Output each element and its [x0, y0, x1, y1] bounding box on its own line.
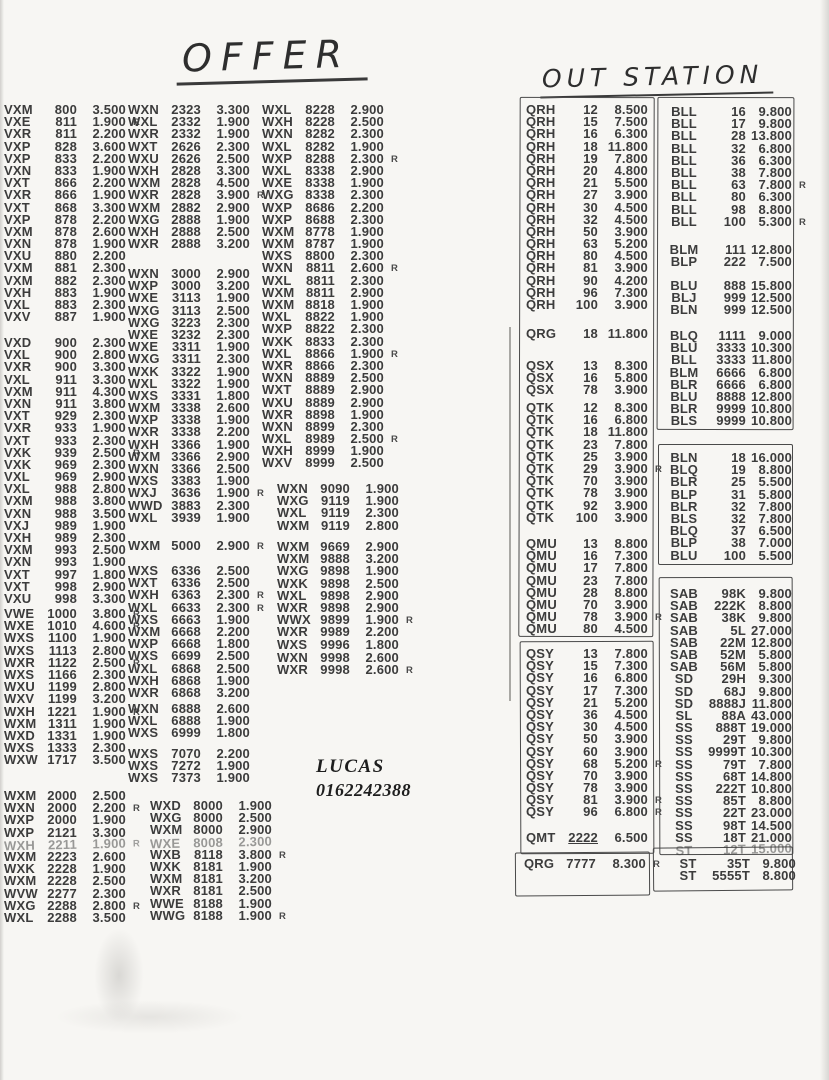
price-group: WXM50002.900R	[128, 540, 250, 552]
price-group: BLN1816.000BLQ198.800BLR255.500BLP315.80…	[664, 452, 792, 562]
cell-value: 3.200	[204, 687, 250, 700]
cell-value: 6.800	[598, 806, 648, 819]
outstation-row: BLP2227.500	[664, 256, 792, 268]
cell-number: 100	[704, 550, 746, 563]
cell-number: 9999	[704, 415, 746, 428]
cell-value: 11.800	[598, 328, 648, 341]
cell-number: 2288	[45, 912, 77, 925]
outstation-row: QRH1003.900	[526, 299, 648, 311]
cell-value: 10.800	[746, 415, 792, 428]
cell-value: 3.500	[80, 754, 126, 767]
price-group: BLL169.800BLL179.800BLL2813.800BLL326.80…	[664, 106, 792, 228]
cell-value: 2.800	[353, 520, 399, 533]
cell-number: 9998	[318, 664, 350, 677]
price-group: VXM8003.500VXE8111.900RVXR8112.200VXP828…	[4, 104, 126, 323]
cell-number: 3939	[169, 512, 201, 525]
price-group: WXL82282.900WXH82282.500WXN82822.300WXL8…	[262, 104, 384, 470]
cell-code: WXL	[4, 912, 42, 925]
offer-row: WXS69991.800	[128, 727, 250, 739]
cell-code: QRG	[524, 858, 560, 871]
outstation-row: QTK1003.900	[526, 512, 648, 524]
price-group: QRH128.500QRH157.500QRH166.300QRH1811.80…	[526, 104, 648, 311]
cell-code: VXU	[4, 593, 42, 606]
cell-code: WXM	[128, 540, 166, 553]
cell-code: WXW	[4, 754, 42, 767]
cell-value: 2.600	[353, 664, 399, 677]
cell-number: 100	[562, 512, 598, 525]
outstation-row: QSX783.900	[526, 384, 648, 396]
outstation-row: ST5555T8.800	[668, 870, 796, 882]
offer-row: WXS99961.800	[277, 639, 399, 651]
cell-value: 8.300	[596, 858, 646, 871]
cell-number: 100	[704, 216, 746, 229]
cell-code: BLP	[664, 256, 704, 269]
price-group: QTK128.300QTK166.800QTK1811.800QTK237.80…	[526, 402, 648, 524]
cell-code: QMT	[526, 832, 562, 845]
cell-value: 12.500	[746, 304, 792, 317]
cell-value: 1.900	[204, 772, 250, 785]
cell-value: 1.800	[204, 727, 250, 740]
cell-code: WXR	[128, 687, 166, 700]
price-group: WXN23233.300WXL23321.900WXR23321.900WXT2…	[128, 104, 250, 250]
cell-value: 7.500	[746, 256, 792, 269]
price-group: QMT22226.500	[526, 832, 648, 844]
cell-value: 2.500	[338, 457, 384, 470]
price-group: BLM11112.800BLP2227.500	[664, 244, 792, 268]
scanned-price-sheet: OFFER OUT STATION VXM8003.500VXE8111.900…	[0, 0, 829, 1080]
r-mark: R	[391, 349, 398, 362]
price-group: WXS63362.500WXT63362.500WXH63632.300RWXL…	[128, 565, 250, 699]
offer-row: WWG81881.900R	[150, 910, 272, 922]
cell-value: 2.900	[204, 540, 250, 553]
cell-value: 3.900	[598, 299, 648, 312]
r-mark: R	[257, 541, 264, 554]
cell-number: 80	[562, 623, 598, 636]
offer-row: WXL22883.500	[4, 912, 126, 924]
r-mark: R	[653, 859, 660, 872]
outstation-row: BLL1005.300R	[664, 216, 792, 228]
cell-number: 6999	[169, 727, 201, 740]
r-mark: R	[279, 850, 286, 863]
r-mark: R	[391, 434, 398, 447]
r-mark: R	[133, 901, 140, 914]
price-group: WXM20002.500WXN20002.200RWXP20001.900WXP…	[4, 790, 126, 924]
r-mark: R	[133, 803, 140, 816]
offer-row: WXL39391.900	[128, 512, 250, 524]
cell-number: 18	[562, 328, 598, 341]
cell-value: 3.900	[598, 384, 648, 397]
cell-number: 2888	[169, 238, 201, 251]
offer-row: WXS73731.900	[128, 772, 250, 784]
outstation-title: OUT STATION	[540, 60, 774, 99]
cell-code: BLN	[664, 304, 704, 317]
contact-note: LUCAS 0162242388	[316, 756, 411, 801]
cell-number: 78	[562, 384, 598, 397]
cell-code: WXL	[128, 512, 166, 525]
outstation-row: QSY966.800R	[526, 806, 648, 818]
outstation-row: BLN99912.500	[664, 304, 792, 316]
offer-row: VXU9983.300	[4, 593, 126, 605]
price-group: WXN99982.600WXR99982.600R	[277, 652, 399, 676]
outstation-row: QRG77778.300R	[524, 858, 646, 870]
cell-code: BLL	[664, 216, 704, 229]
cell-code: BLS	[664, 415, 704, 428]
cell-code: WXM	[277, 520, 315, 533]
offer-row: WXV89992.500	[262, 457, 384, 469]
price-group: QMU138.800QMU167.300QMU177.800QMU237.800…	[526, 538, 648, 636]
price-group: VXD9002.300VXL9002.800VXR9003.300VXL9113…	[4, 337, 126, 605]
contact-phone: 0162242388	[316, 780, 411, 801]
r-mark: R	[391, 263, 398, 276]
offer-row: WXM91192.800	[277, 520, 399, 532]
price-group: QSX138.300QSX165.800QSX783.900	[526, 360, 648, 397]
cell-number: 998	[45, 593, 77, 606]
r-mark: R	[257, 488, 264, 501]
cell-value: 15.000	[746, 842, 792, 856]
cell-number: 999	[704, 304, 746, 317]
r-mark: R	[799, 180, 806, 193]
cell-code: BLU	[664, 550, 704, 563]
cell-number: 9119	[318, 520, 350, 533]
r-mark: R	[279, 911, 286, 924]
price-group: WXM96692.900WXM98883.200WXG98981.900WXK9…	[277, 541, 399, 651]
outstation-row: QMU804.500	[526, 623, 648, 635]
r-mark: R	[655, 795, 662, 808]
cell-value: 8.800	[750, 870, 796, 883]
price-group: SAB98K9.800SAB222K8.800SAB38K9.800SAB5L2…	[664, 588, 792, 856]
cell-code: ST	[668, 870, 708, 883]
r-mark: R	[133, 838, 140, 851]
price-group: WXD80001.900WXG80002.500WXM80002.900WXE8…	[150, 800, 272, 922]
scan-smudge	[55, 1000, 245, 1034]
offer-row: VXV8871.900	[4, 311, 126, 323]
price-group: QSY137.800QSY157.300QSY166.800QSY177.300…	[526, 648, 648, 819]
cell-number: 7373	[169, 772, 201, 785]
price-group: WXN68882.600WXL68881.900WXS69991.800	[128, 703, 250, 740]
r-mark: R	[257, 590, 264, 603]
offer-row: WXR68683.200	[128, 687, 250, 699]
cell-number: 2222	[562, 832, 598, 845]
offer-row: WXW17173.500	[4, 754, 126, 766]
cell-value: 5.300	[746, 216, 792, 229]
cell-code: QRG	[526, 328, 562, 341]
contact-name: LUCAS	[316, 756, 411, 778]
cell-code: WXV	[262, 457, 300, 470]
cell-value: 3.900	[598, 512, 648, 525]
price-group: WXN90901.900WXG91191.900WXL91192.300WXM9…	[277, 483, 399, 532]
r-mark: R	[257, 603, 264, 616]
cell-number: 222	[704, 256, 746, 269]
cell-number: 887	[45, 311, 77, 324]
cell-number: 5000	[169, 540, 201, 553]
r-mark: R	[655, 464, 662, 477]
cell-value: 3.300	[80, 593, 126, 606]
scan-edge-right	[820, 0, 829, 1080]
cell-code: WXS	[128, 772, 166, 785]
cell-code: QMU	[526, 623, 562, 636]
offer-row: WXM50002.900R	[128, 540, 250, 552]
cell-value: 1.900	[204, 512, 250, 525]
price-group: VWE10003.800RWXE10104.600RWXS11001.900WX…	[4, 608, 126, 766]
outstation-row: QRG1811.800	[526, 328, 648, 340]
r-mark: R	[406, 615, 413, 628]
price-group: WXN30002.900WXP30003.200WXE31131.900WXG3…	[128, 268, 250, 524]
r-mark: R	[655, 759, 662, 772]
cell-number: 7777	[560, 858, 596, 871]
price-group: ST35T9.800ST5555T8.800	[668, 858, 796, 882]
cell-number: 8999	[303, 457, 335, 470]
cell-code: QTK	[526, 512, 562, 525]
r-mark: R	[391, 154, 398, 167]
r-mark: R	[799, 217, 806, 230]
cell-code: QSY	[526, 806, 562, 819]
cell-number: 1717	[45, 754, 77, 767]
cell-value: 3.500	[80, 912, 126, 925]
cell-code: WXS	[128, 727, 166, 740]
cell-value: 4.500	[598, 623, 648, 636]
outstation-row: BLU1005.500	[664, 550, 792, 562]
cell-code: VXV	[4, 311, 42, 324]
cell-value: 3.200	[204, 238, 250, 251]
cell-value: 6.500	[598, 832, 648, 845]
cell-code: QRH	[526, 299, 562, 312]
r-mark: R	[406, 665, 413, 678]
cell-code: WXR	[128, 238, 166, 251]
cell-number: 12T	[704, 844, 746, 857]
price-group: BLQ11119.000BLU333310.300BLL333311.800BL…	[664, 330, 792, 428]
cell-code: QSX	[526, 384, 562, 397]
offer-row: WXR28883.200	[128, 238, 250, 250]
cell-code: WWG	[150, 910, 188, 923]
price-group: WXS70702.200WXS72721.900WXS73731.900	[128, 748, 250, 785]
cell-number: 100	[562, 299, 598, 312]
cell-value: 5.500	[746, 550, 792, 563]
price-group: QRG77778.300R	[524, 858, 646, 870]
offer-title: OFFER	[175, 31, 367, 85]
scan-fold-line	[509, 327, 511, 701]
outstation-row: QMT22226.500	[526, 832, 648, 844]
price-group: BLU88815.800BLJ99912.500BLN99912.500	[664, 280, 792, 317]
scan-edge-left	[0, 0, 4, 1080]
r-mark: R	[655, 612, 662, 625]
cell-number: 6868	[169, 687, 201, 700]
offer-row: WXR99982.600R	[277, 664, 399, 676]
price-group: QRG1811.800	[526, 328, 648, 340]
cell-number: 8188	[191, 910, 223, 923]
r-mark: R	[655, 807, 662, 820]
cell-code: WXR	[277, 664, 315, 677]
cell-value: 1.900	[226, 910, 272, 923]
cell-value: 1.900	[80, 311, 126, 324]
cell-number: 96	[562, 806, 598, 819]
outstation-row: BLS999910.800	[664, 415, 792, 427]
cell-number: 5555T	[708, 870, 750, 883]
